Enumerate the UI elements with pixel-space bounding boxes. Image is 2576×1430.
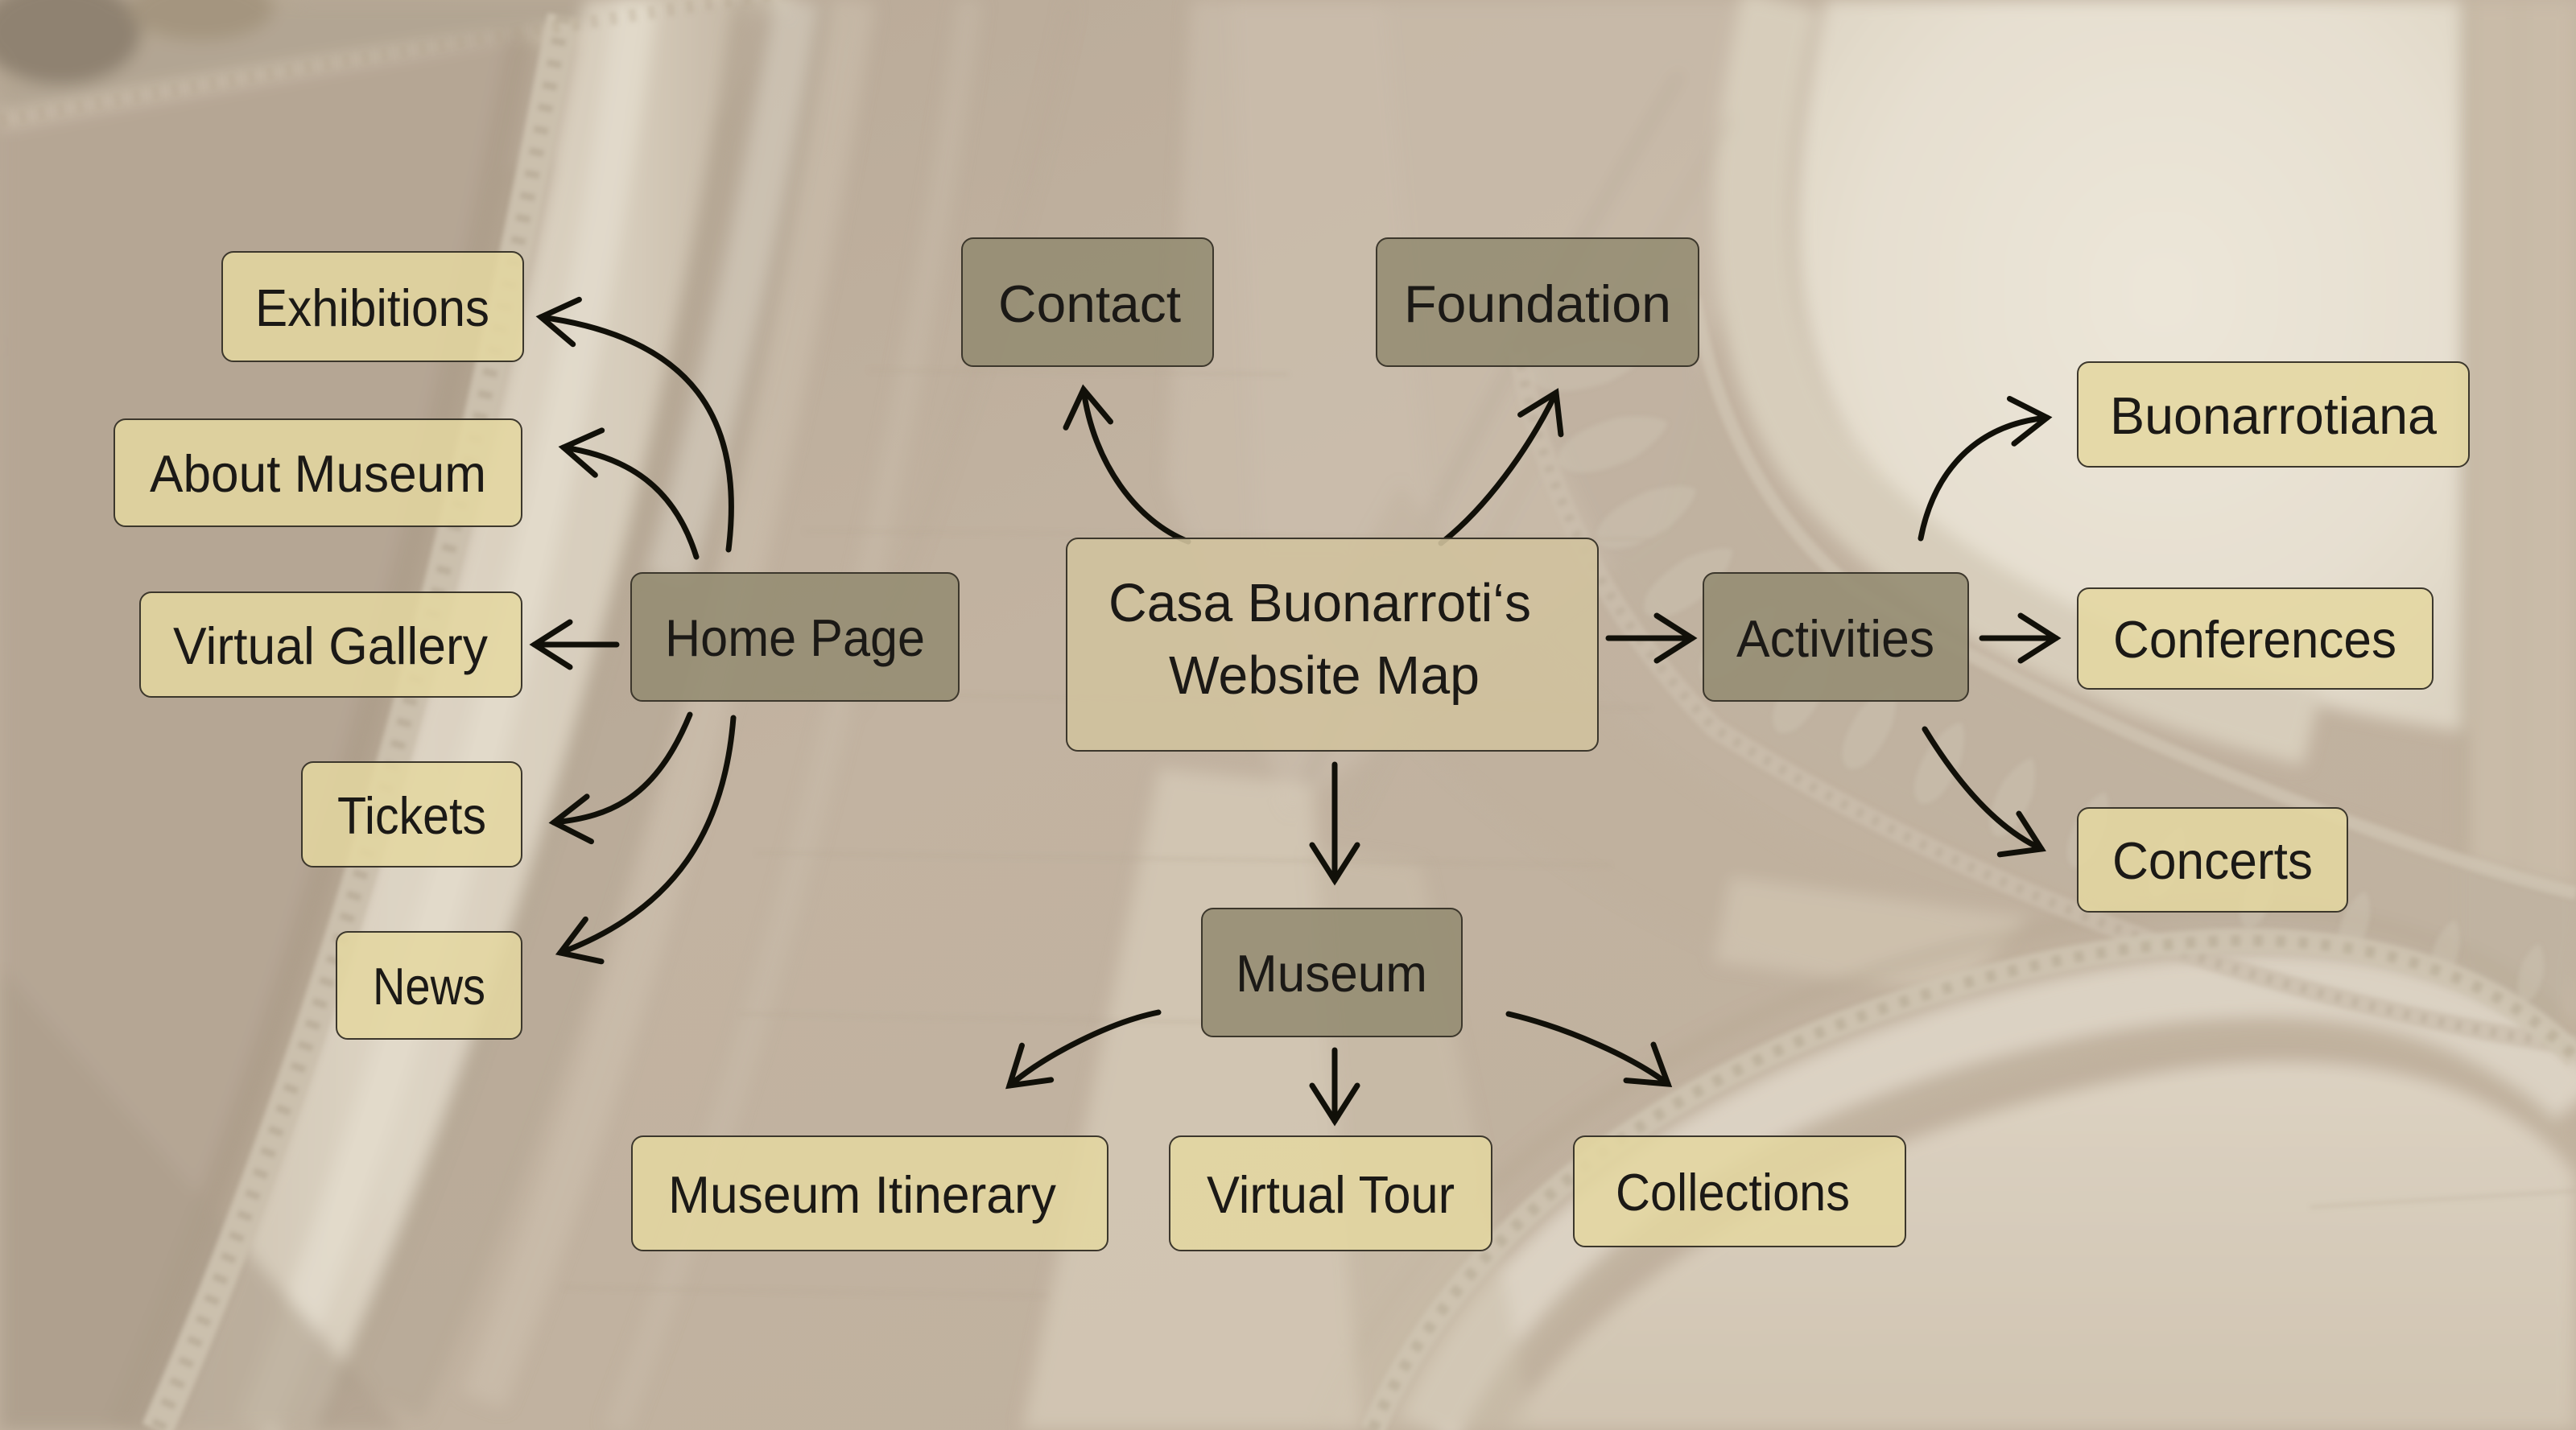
svg-text:Website Map: Website Map [1169,645,1480,706]
svg-text:Exhibitions: Exhibitions [255,278,489,337]
svg-text:Virtual Gallery: Virtual Gallery [173,616,488,675]
svg-text:Concerts: Concerts [2112,831,2313,890]
svg-text:Contact: Contact [998,274,1181,333]
svg-text:Casa Buonarroti‘s: Casa Buonarroti‘s [1108,573,1531,633]
svg-text:Activities: Activities [1736,609,1934,668]
svg-text:Museum Itinerary: Museum Itinerary [668,1165,1056,1224]
svg-text:Home Page: Home Page [665,608,925,667]
svg-text:Virtual Tour: Virtual Tour [1207,1165,1455,1224]
svg-text:News: News [373,957,485,1016]
svg-text:About Museum: About Museum [150,444,486,503]
svg-text:Conferences: Conferences [2113,610,2396,669]
svg-text:Foundation: Foundation [1404,274,1671,333]
svg-text:Tickets: Tickets [337,786,486,845]
svg-text:Museum: Museum [1236,944,1427,1003]
svg-text:Collections: Collections [1616,1163,1850,1222]
svg-text:Buonarrotiana: Buonarrotiana [2110,386,2438,445]
